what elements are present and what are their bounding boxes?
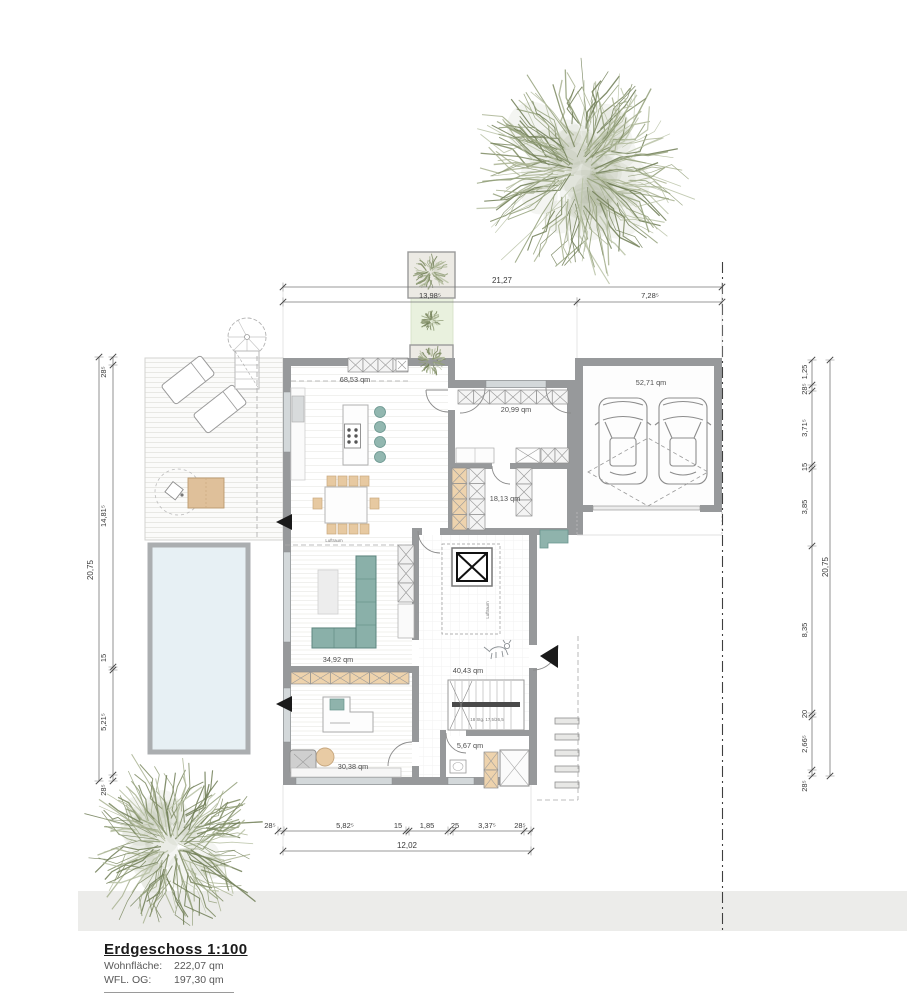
dim-bottom-6: 28⁵ [514, 821, 525, 830]
outdoor-table [188, 478, 224, 508]
dim-bottom-1: 5,82⁵ [336, 821, 354, 830]
dim-right-0: 1,25 [800, 365, 809, 380]
air-space-label: Luftraum [485, 601, 490, 619]
room-label-office: 30,38 qm [338, 762, 368, 771]
kitchen-island [343, 405, 368, 465]
dim-right-4: 3,85 [800, 500, 809, 515]
shower [500, 750, 529, 786]
room-label-living: 34,92 qm [323, 655, 353, 664]
monitor [330, 699, 344, 710]
office-chair [316, 748, 334, 766]
dim-bottom-5: 3,37⁵ [478, 821, 496, 830]
dim-left-1: 14,81⁵ [99, 505, 108, 527]
dining-table [325, 487, 367, 523]
shelf [398, 604, 414, 638]
floor-plan-drawing: 21,27 13,98⁵ 7,28⁵ 28⁵ 5,82⁵ 15 1,85 25 … [0, 0, 907, 1000]
dim-left-4: 28⁵ [99, 784, 108, 795]
title-block: Erdgeschoss 1:100 Wohnfläche:222,07 qm W… [104, 941, 248, 993]
room-label-garage: 52,71 qm [636, 378, 666, 387]
area-row: Wohnfläche:222,07 qm [104, 960, 248, 972]
dim-right-8: 28⁵ [800, 780, 809, 791]
dim-bottom-0: 28⁵ [264, 821, 275, 830]
stair-note: 18 Stg. 17,5/26,5 [470, 717, 504, 722]
room-label-hall: 40,43 qm [453, 666, 483, 675]
dim-left-2: 15 [99, 654, 108, 662]
floor-plan-page: 21,27 13,98⁵ 7,28⁵ 28⁵ 5,82⁵ 15 1,85 25 … [0, 0, 907, 1000]
dim-bottom-2: 15 [394, 821, 402, 830]
dim-right-3: 15 [800, 463, 809, 471]
room-label-kitchen: 68,53 qm [340, 375, 370, 384]
sink [450, 760, 466, 773]
dim-right-6: 20 [800, 710, 809, 718]
upper-floor-value: 197,30 qm [174, 974, 224, 986]
air-space-label: Luftraum [325, 538, 343, 543]
area-value: 222,07 qm [174, 960, 224, 972]
title-rule [104, 992, 234, 993]
outdoor-steps [555, 718, 579, 788]
dim-right-total: 20,75 [821, 556, 830, 577]
dim-bottom-4: 25 [451, 821, 459, 830]
room-label-hallway: 18,13 qm [490, 494, 520, 503]
dim-right-5: 8,35 [800, 623, 809, 638]
dim-right-1: 28⁵ [800, 383, 809, 394]
dim-top-total: 21,27 [492, 276, 513, 285]
garage-door [593, 506, 700, 510]
area-label: Wohnfläche: [104, 960, 174, 972]
kitchen-counter [291, 388, 305, 480]
terrace [145, 318, 283, 540]
dim-left-3: 5,21⁵ [99, 713, 108, 731]
upper-floor-label: WFL. OG: [104, 974, 174, 986]
stairs [448, 680, 524, 730]
dim-bottom-3: 1,85 [420, 821, 435, 830]
room-label-entry: 20,99 qm [501, 405, 531, 414]
dim-top-left: 13,98⁵ [419, 291, 441, 300]
room-label-bath: 5,67 qm [457, 741, 483, 750]
dim-top-right: 7,28⁵ [641, 291, 659, 300]
street-band [78, 891, 907, 931]
dim-bottom-total: 12,02 [397, 841, 418, 850]
upper-floor-row: WFL. OG:197,30 qm [104, 974, 248, 986]
pool [150, 545, 248, 752]
entry-bench [540, 530, 568, 548]
dim-right-7: 2,66⁵ [800, 735, 809, 753]
dim-left-total: 20,75 [86, 559, 95, 580]
plan-title: Erdgeschoss 1:100 [104, 941, 248, 958]
dim-right-2: 3,71⁵ [800, 419, 809, 437]
rug [318, 570, 338, 614]
dim-left-0: 28⁵ [99, 366, 108, 377]
